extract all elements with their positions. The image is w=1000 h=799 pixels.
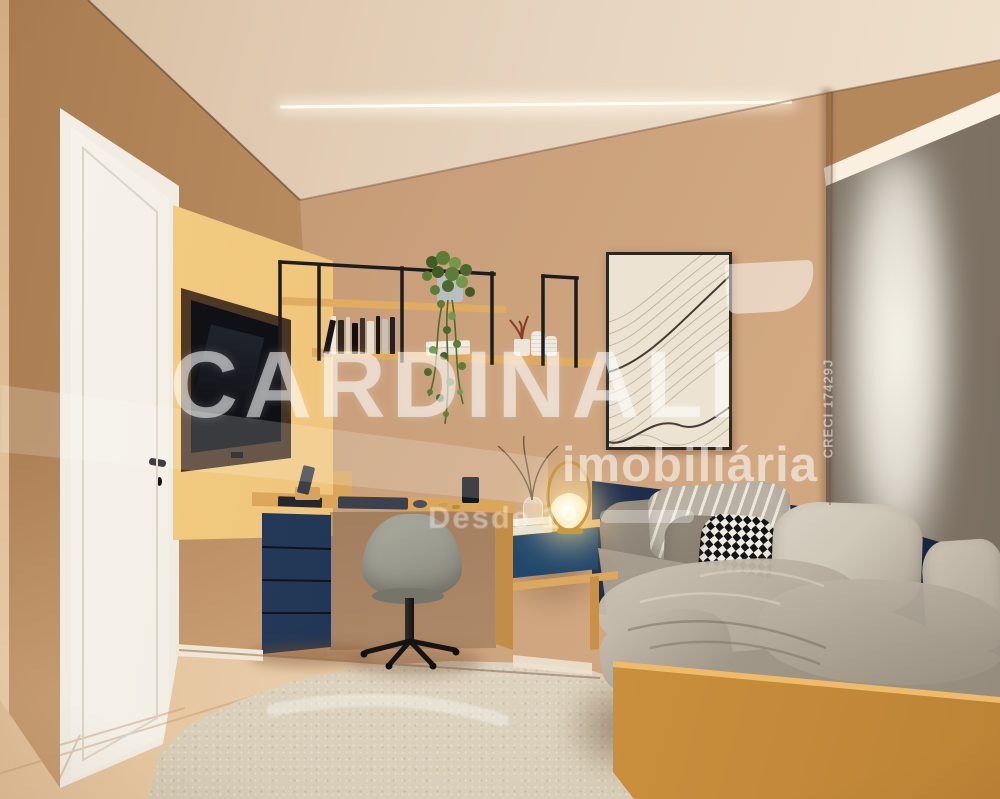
vignette — [0, 0, 1000, 799]
bedroom-render-photo: CARDINALI imobiliária CRECI 17429J Desde… — [0, 0, 1000, 799]
